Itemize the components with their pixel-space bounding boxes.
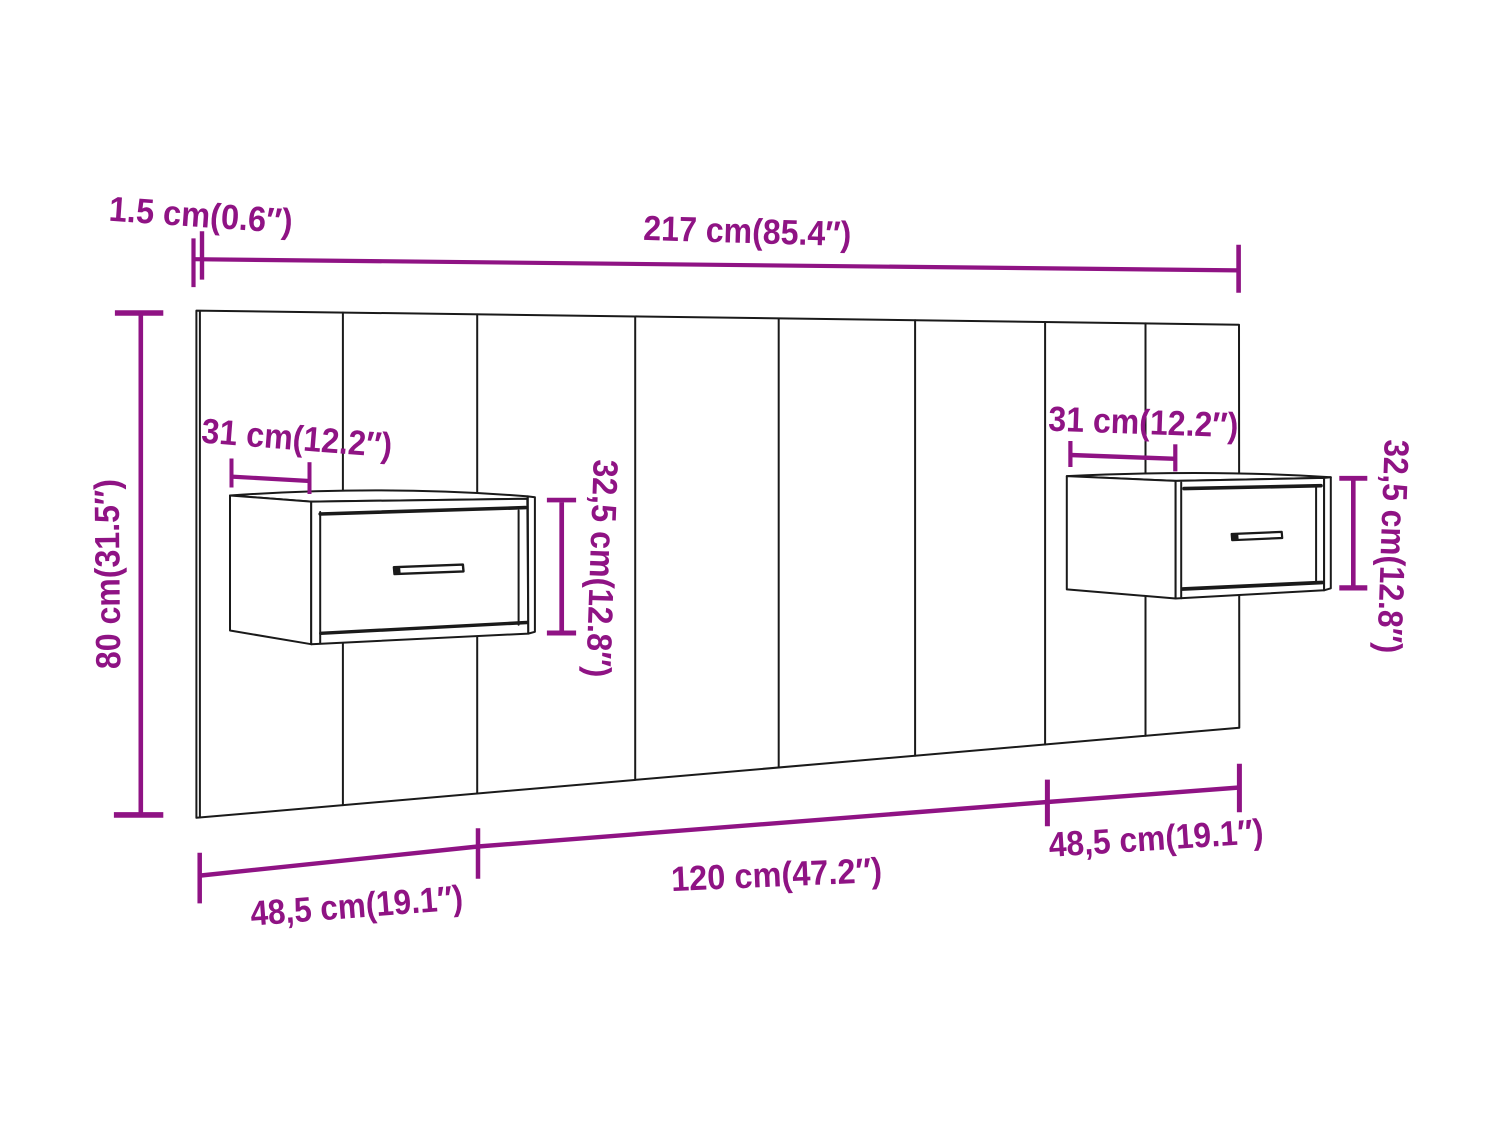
svg-text:32,5 cm(12.8″): 32,5 cm(12.8″) (1369, 439, 1415, 654)
svg-text:217 cm(85.4″): 217 cm(85.4″) (643, 209, 852, 254)
svg-text:80 cm(31.5″): 80 cm(31.5″) (88, 479, 129, 669)
svg-text:31 cm(12.2″): 31 cm(12.2″) (1048, 400, 1239, 446)
svg-text:32,5 cm(12.8″): 32,5 cm(12.8″) (578, 459, 625, 678)
